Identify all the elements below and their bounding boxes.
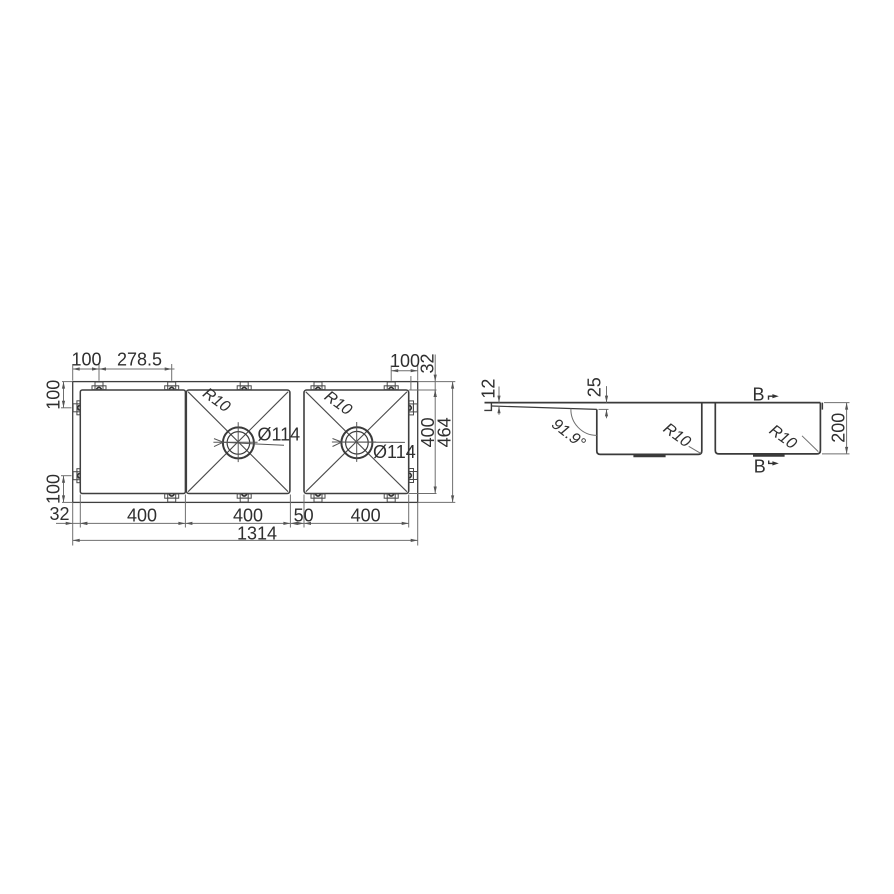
svg-text:200: 200: [829, 413, 849, 443]
svg-text:100: 100: [44, 380, 64, 410]
svg-text:400: 400: [351, 506, 381, 526]
svg-text:278.5: 278.5: [117, 349, 162, 369]
svg-text:464: 464: [435, 417, 455, 447]
svg-text:R10: R10: [321, 388, 355, 419]
svg-text:32: 32: [49, 504, 69, 524]
svg-text:91.9°: 91.9°: [548, 416, 589, 453]
svg-text:100: 100: [71, 349, 101, 369]
svg-text:B: B: [752, 384, 764, 404]
svg-text:12: 12: [479, 379, 499, 399]
svg-text:25: 25: [585, 377, 605, 397]
svg-text:Ø114: Ø114: [257, 424, 300, 444]
svg-text:R10: R10: [766, 422, 800, 453]
svg-text:100: 100: [44, 474, 64, 504]
svg-text:1314: 1314: [237, 523, 277, 543]
svg-text:Ø114: Ø114: [373, 442, 416, 462]
svg-text:100: 100: [390, 351, 420, 371]
svg-text:50: 50: [294, 506, 314, 526]
svg-text:400: 400: [127, 506, 157, 526]
svg-text:32: 32: [418, 353, 438, 373]
svg-text:B: B: [754, 457, 766, 477]
